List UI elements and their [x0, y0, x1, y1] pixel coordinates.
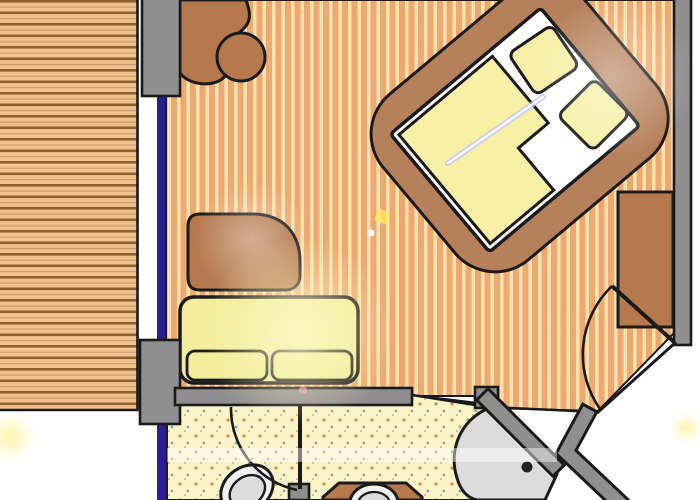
- bedside-cabinet: [618, 192, 673, 327]
- floor-plan-canvas: [0, 0, 700, 500]
- balcony-deck-planks: [0, 0, 137, 410]
- window-glass-line: [157, 92, 166, 500]
- wall-top-left: [142, 0, 180, 96]
- balcony-terrace: [0, 0, 138, 410]
- bathtub-drain-icon: [522, 462, 533, 473]
- wall-left-pier: [140, 340, 180, 424]
- lens-flare-sparkle-white: [368, 230, 375, 237]
- sink-vanity: [323, 483, 422, 500]
- lens-flare-glow-medium: [194, 182, 310, 298]
- lens-flare-sheen-bed: [530, 0, 694, 160]
- lens-flare-sparkle-pink: [299, 386, 307, 394]
- floor-plan-drawing: [0, 0, 700, 500]
- lens-flare-band: [167, 448, 557, 462]
- side-table-round: [217, 33, 265, 81]
